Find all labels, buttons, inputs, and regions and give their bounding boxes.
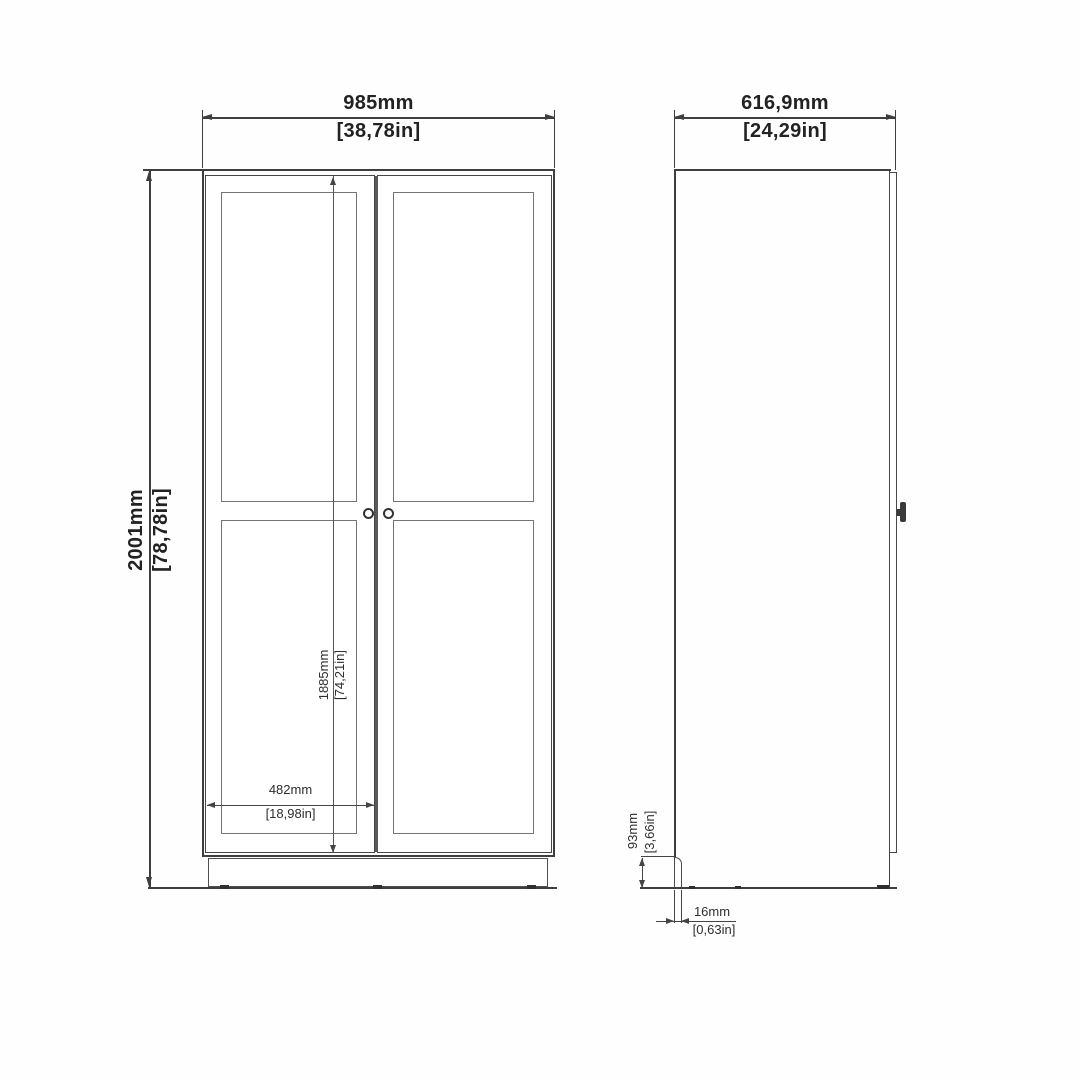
dim-arrow-up-icon (146, 171, 152, 181)
dim-door-height-in: [74,21in] (333, 650, 347, 700)
side-top-edge (674, 169, 891, 171)
dim-arrow-down-icon (330, 845, 336, 853)
door-gap (375, 176, 378, 852)
right-door-knob (383, 508, 394, 519)
dim-plinth-mm: 93mm (626, 813, 640, 849)
front-foot-left (220, 885, 229, 889)
ground-line-front (148, 887, 557, 889)
left-door-upper-panel (221, 192, 357, 502)
dim-arrow-right-icon (666, 918, 674, 924)
dim-width-in: [38,78in] (202, 120, 555, 142)
ground-line-side (640, 887, 897, 889)
side-foot-b (735, 886, 741, 889)
dim-depth-in: [24,29in] (674, 120, 896, 142)
side-rear-leg (674, 857, 682, 888)
dim-door-height-mm: 1885mm (317, 650, 331, 701)
dim-line-door-height (333, 176, 334, 853)
dim-plinth-in: [3,66in] (643, 811, 657, 854)
dim-height-mm: 2001mm (125, 489, 147, 571)
plinth-front (208, 858, 548, 887)
side-foot-a (689, 886, 695, 889)
left-door (205, 175, 375, 853)
side-back-edge (674, 169, 676, 857)
door-side-profile (889, 172, 897, 853)
dim-arrow-up-icon (330, 177, 336, 185)
dim-line-width (202, 117, 555, 119)
dim-height-in: [78,78in] (150, 488, 172, 572)
right-door-lower-panel (393, 520, 534, 834)
knob-side-cap (900, 502, 906, 522)
right-door-upper-panel (393, 192, 534, 502)
front-foot-right (527, 885, 536, 889)
dim-ext-plinth-top (641, 856, 674, 857)
dim-door-width-in: [18,98in] (207, 807, 374, 821)
right-door (377, 175, 552, 853)
front-foot-center (373, 885, 382, 889)
dim-depth-mm: 616,9mm (674, 92, 896, 114)
technical-drawing: 985mm [38,78in] 2001mm [78,78in] 1885mm … (0, 0, 1080, 1080)
dim-arrow-down-icon (146, 877, 152, 887)
dim-panel-in: [0,63in] (683, 923, 745, 937)
dim-panel-mm: 16mm (683, 905, 741, 919)
side-foot-front (877, 885, 889, 889)
left-door-knob (363, 508, 374, 519)
dim-width-mm: 985mm (202, 92, 555, 114)
dim-line-depth (674, 117, 896, 119)
dim-door-width-mm: 482mm (207, 783, 374, 797)
dim-arrow-down-icon (639, 880, 645, 888)
dim-arrow-up-icon (639, 858, 645, 866)
